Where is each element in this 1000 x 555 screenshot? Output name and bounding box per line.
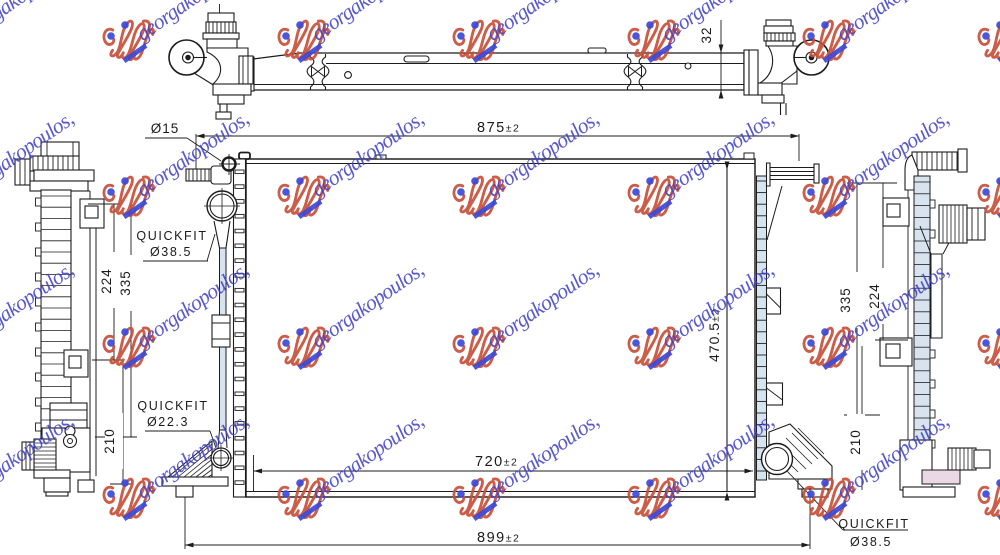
- svg-text:QUICKFIT: QUICKFIT: [136, 229, 207, 243]
- svg-text:Ø38.5: Ø38.5: [150, 245, 192, 259]
- svg-text:335: 335: [838, 287, 853, 313]
- svg-text:QUICKFIT: QUICKFIT: [838, 517, 909, 531]
- svg-text:899±2: 899±2: [477, 530, 520, 546]
- svg-text:335: 335: [118, 270, 133, 296]
- svg-text:224: 224: [99, 268, 114, 294]
- svg-text:Ø15: Ø15: [151, 121, 180, 136]
- svg-text:210: 210: [102, 428, 117, 454]
- svg-text:QUICKFIT: QUICKFIT: [137, 399, 208, 413]
- svg-text:Ø38.5: Ø38.5: [850, 535, 892, 549]
- svg-text:875±2: 875±2: [477, 120, 520, 136]
- svg-text:Ø22.3: Ø22.3: [147, 415, 189, 429]
- svg-text:210: 210: [848, 429, 863, 455]
- svg-text:32: 32: [699, 26, 714, 43]
